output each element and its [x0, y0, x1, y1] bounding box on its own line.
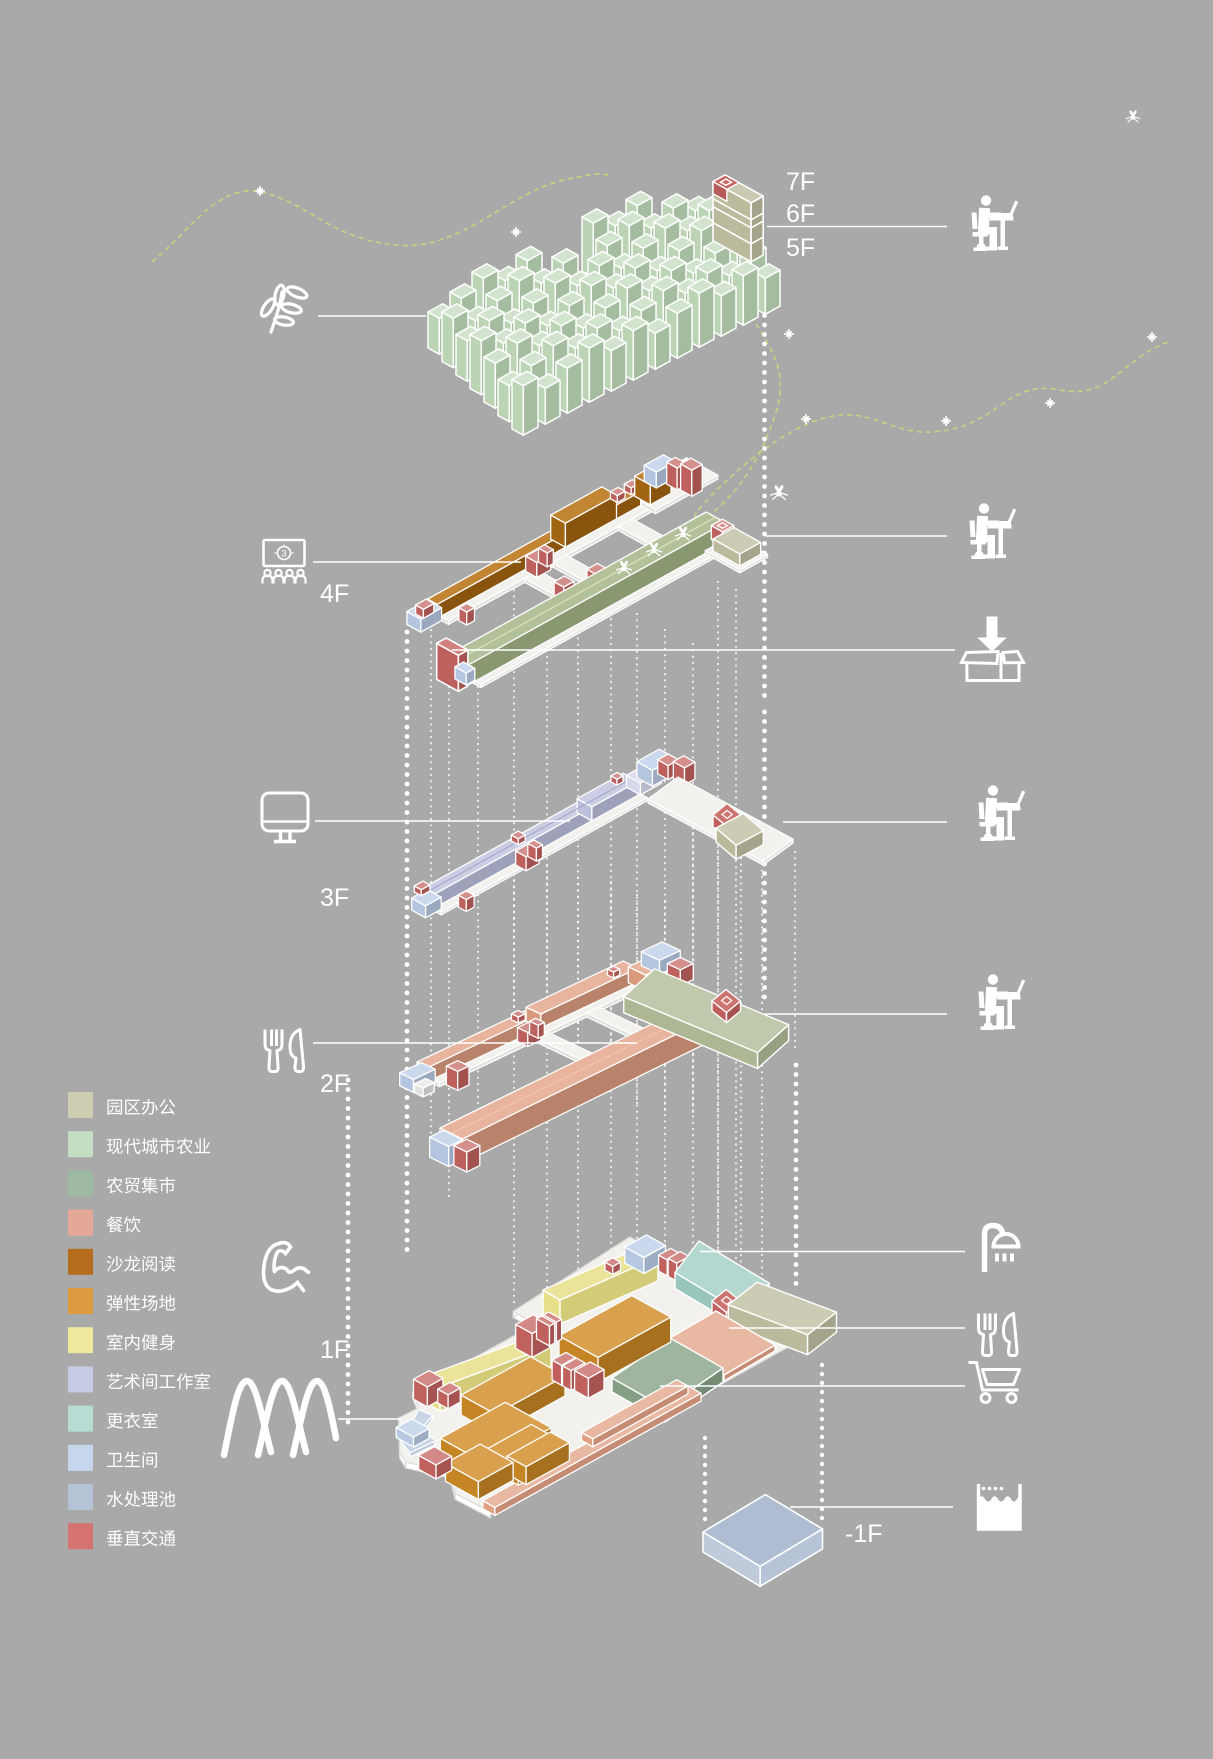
- svg-text:3: 3: [281, 549, 286, 559]
- svg-text:7F: 7F: [786, 168, 815, 196]
- svg-text:4F: 4F: [320, 580, 349, 608]
- svg-text:6F: 6F: [786, 200, 815, 228]
- svg-text:2F: 2F: [320, 1070, 349, 1098]
- svg-text:-1F: -1F: [845, 1520, 883, 1548]
- svg-text:3F: 3F: [320, 884, 349, 912]
- svg-text:1F: 1F: [320, 1336, 349, 1364]
- svg-text:5F: 5F: [786, 234, 815, 262]
